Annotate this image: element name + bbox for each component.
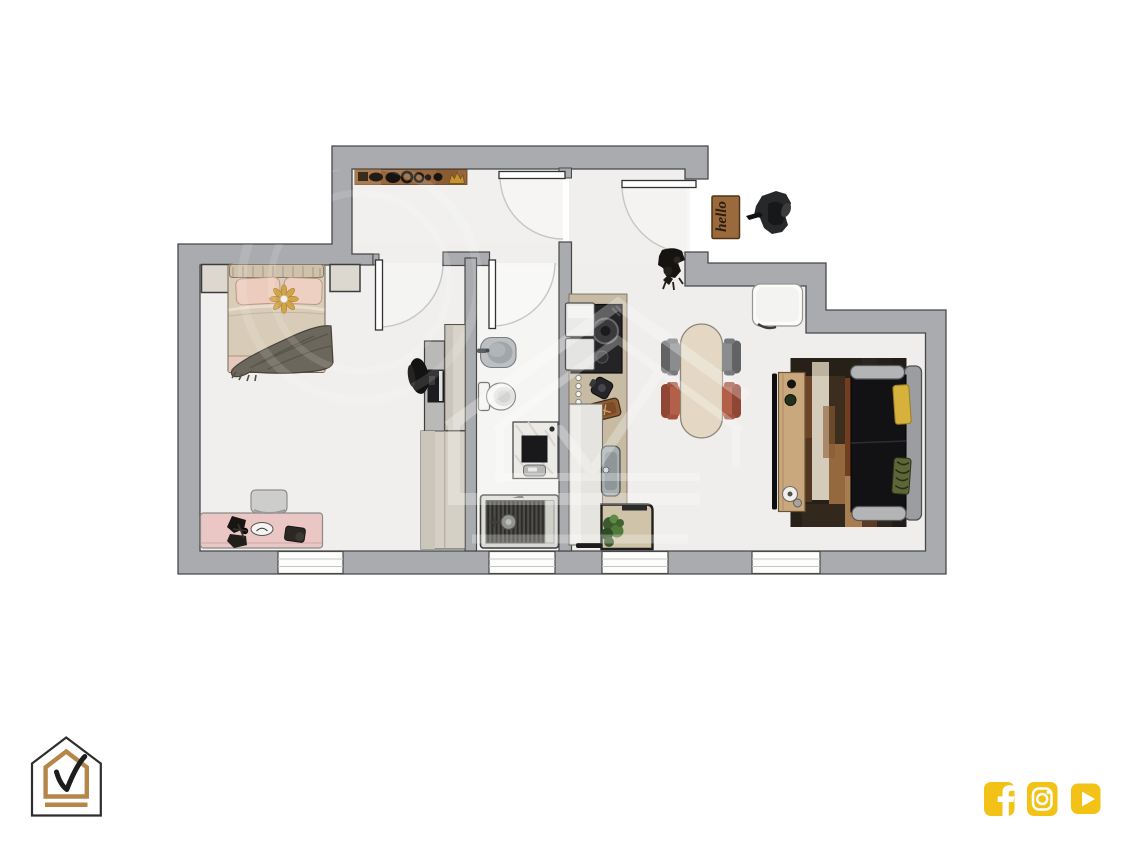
svg-text:hello: hello (714, 201, 730, 232)
